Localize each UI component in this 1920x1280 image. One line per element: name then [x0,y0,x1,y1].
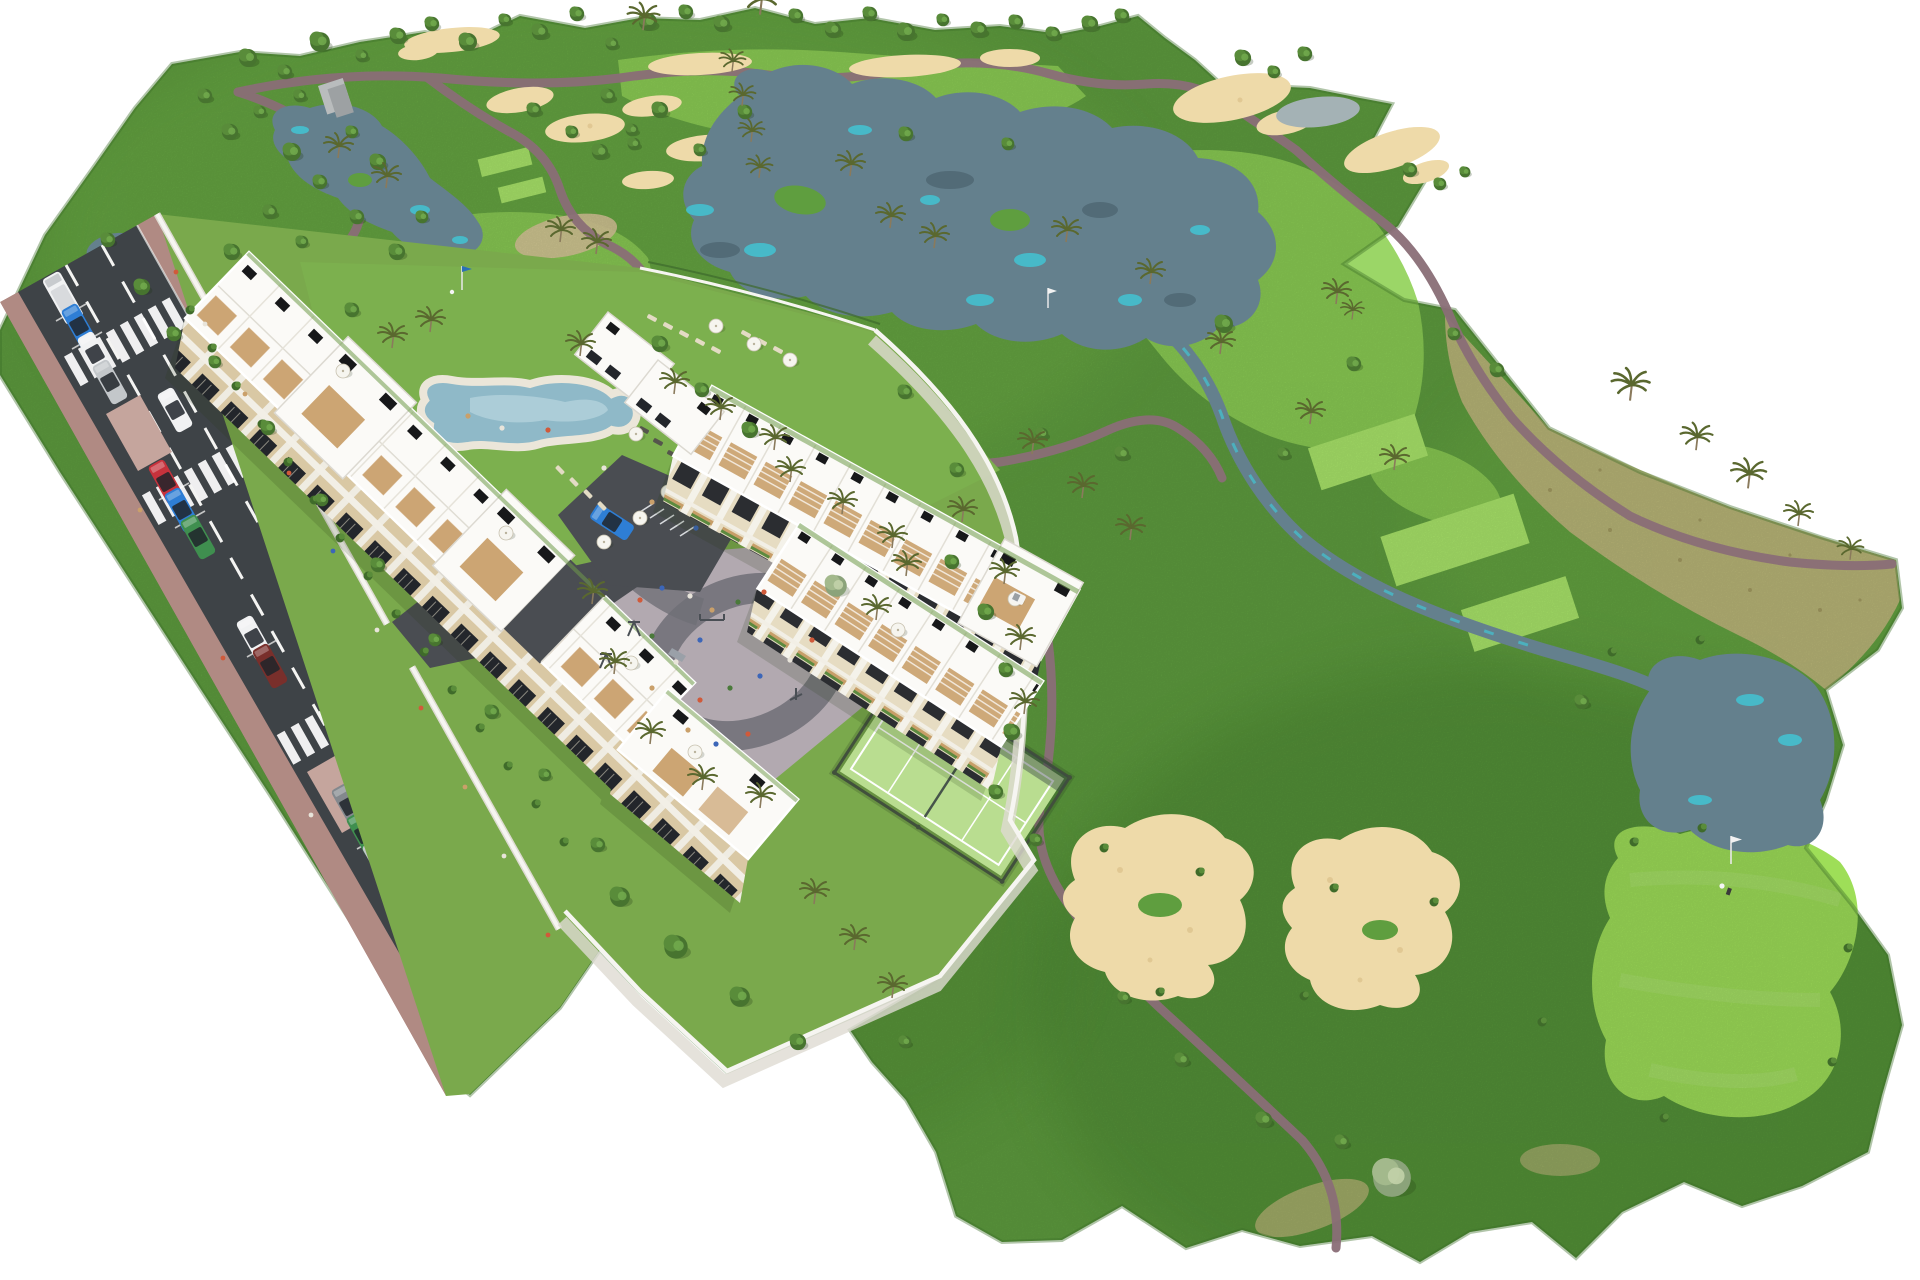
right-lake [1631,654,1835,853]
tree [1433,177,1448,190]
palm-tree [1681,423,1713,451]
tree [1402,162,1419,177]
tree [862,6,879,21]
tree [678,4,695,19]
tree [1045,26,1062,41]
tree [1114,8,1131,23]
tree [1267,65,1282,78]
golfer [1719,883,1724,888]
tree [1008,14,1025,29]
tree [1081,15,1100,32]
tree [788,8,805,23]
palm-tree [1784,501,1813,526]
tree [498,13,513,26]
tree [1234,49,1253,66]
tree [1489,362,1506,377]
palm-tree [1731,458,1766,488]
tree [310,32,333,52]
tree [1459,166,1472,177]
tree [936,13,951,26]
tree [970,21,989,38]
tree [424,16,441,31]
tree [389,27,408,44]
tree [569,6,586,21]
palm-tree [1612,368,1650,401]
tree [1297,46,1314,61]
render-canvas: Aerial 3D render of a golf resort apartm… [0,0,1920,1280]
aerial-render [0,0,1920,1280]
